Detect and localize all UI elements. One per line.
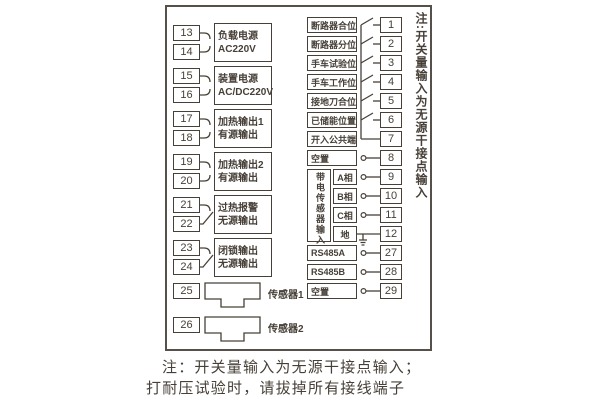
input-label: 手车试验位 (307, 55, 357, 71)
bottom-note-line1: 注：开关量输入为无源干接点输入； (162, 356, 421, 377)
terminal-box: 18 (173, 130, 200, 146)
terminal-pair-label: 过热报警无源输出 (214, 195, 272, 234)
wiring-diagram: 注:开关量输入为无源干接点输入 注：开关量输入为无源干接点输入； 打耐压试验时，… (0, 0, 600, 400)
terminal-box: 26 (173, 317, 200, 333)
terminal-box: 4 (380, 74, 402, 90)
label-line: 负载电源 (218, 30, 271, 43)
label-line: 无源输出 (218, 258, 271, 271)
terminal-box: 10 (380, 188, 402, 204)
terminal-box: 5 (380, 93, 402, 109)
terminal-box: 27 (380, 245, 402, 261)
terminal-pair-label: 装置电源AC/DC220V (214, 66, 272, 105)
input-label: 接地刀合位 (307, 93, 357, 109)
terminal-box: 16 (173, 87, 200, 103)
terminal-box: 29 (380, 283, 402, 299)
label-line: 过热报警 (218, 202, 271, 215)
terminal-box: 12 (380, 226, 402, 242)
phase-label: C相 (333, 207, 357, 223)
terminal-box: 17 (173, 111, 200, 127)
phase-label: B相 (333, 188, 357, 204)
terminal-box: 7 (380, 131, 402, 147)
terminal-box: 13 (173, 25, 200, 41)
terminal-box: 14 (173, 44, 200, 60)
terminal-box: 3 (380, 55, 402, 71)
terminal-box: 11 (380, 207, 402, 223)
input-label: RS485A (307, 245, 357, 261)
input-label: 空置 (307, 283, 357, 299)
terminal-box: 25 (173, 283, 200, 299)
terminal-box: 2 (380, 36, 402, 52)
terminal-pair-label: 加热输出1有源输出 (214, 109, 272, 148)
terminal-box: 24 (173, 259, 200, 275)
terminal-box: 22 (173, 216, 200, 232)
label-line: 加热输出1 (218, 116, 271, 129)
terminal-box: 28 (380, 264, 402, 280)
bottom-note-line2: 打耐压试验时，请拔掉所有接线端子 (146, 377, 405, 398)
input-label: 空置 (307, 150, 357, 166)
terminal-pair-label: 加热输出2有源输出 (214, 152, 272, 191)
side-note: 注:开关量输入为无源干接点输入 (411, 12, 431, 222)
input-label: 断路器合位 (307, 17, 357, 33)
label-line: 装置电源 (218, 73, 271, 86)
terminal-pair-label: 闭锁输出无源输出 (214, 238, 272, 277)
label-line: 加热输出2 (218, 159, 271, 172)
label-line: 闭锁输出 (218, 245, 271, 258)
terminal-box: 19 (173, 154, 200, 170)
phase-label: A相 (333, 169, 357, 185)
terminal-box: 9 (380, 169, 402, 185)
label-line: 无源输出 (218, 215, 271, 228)
label-line: 有源输出 (218, 172, 271, 185)
terminal-pair-label: 负载电源AC220V (214, 23, 272, 62)
input-label: 已储能位置 (307, 112, 357, 128)
input-label: RS485B (307, 264, 357, 280)
input-label: 手车工作位 (307, 74, 357, 90)
terminal-box: 20 (173, 173, 200, 189)
terminal-box: 15 (173, 68, 200, 84)
input-label: 开入公共端 (307, 131, 357, 147)
label-line: AC/DC220V (218, 86, 271, 99)
phase-label: 地 (333, 226, 357, 242)
sensor-label: 传感器1 (268, 286, 304, 301)
live-sensor-input-group-label: 带电传感器输入 (307, 169, 331, 242)
terminal-box: 23 (173, 240, 200, 256)
input-label: 断路器分位 (307, 36, 357, 52)
terminal-box: 21 (173, 197, 200, 213)
sensor-label: 传感器2 (268, 320, 304, 335)
label-line: AC220V (218, 43, 271, 56)
terminal-box: 8 (380, 150, 402, 166)
terminal-box: 6 (380, 112, 402, 128)
label-line: 有源输出 (218, 129, 271, 142)
terminal-box: 1 (380, 17, 402, 33)
